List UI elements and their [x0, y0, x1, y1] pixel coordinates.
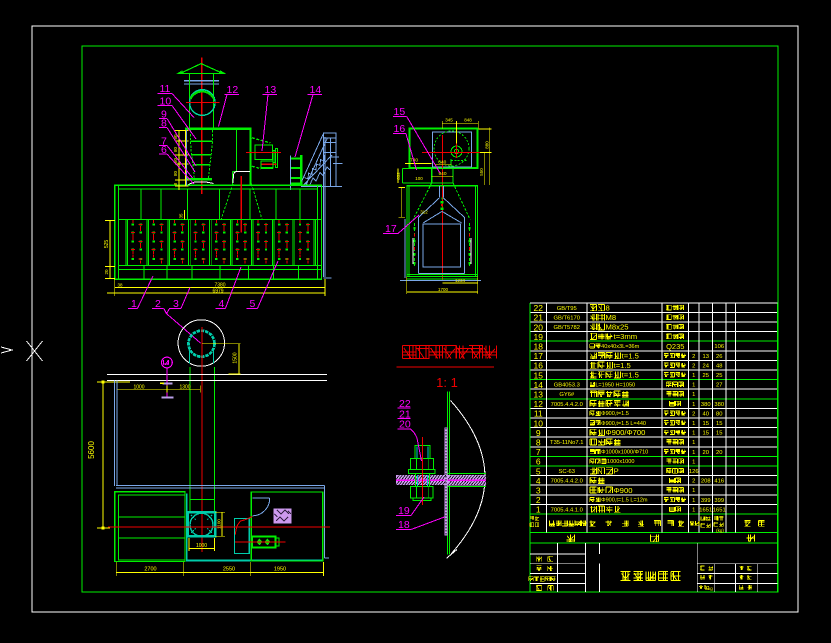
svg-text:Φ900,t=1.5: Φ900,t=1.5 — [601, 411, 629, 417]
svg-text:1: 1 — [692, 459, 695, 465]
svg-text:2: 2 — [692, 354, 695, 360]
svg-text:1: 1 — [692, 431, 695, 437]
svg-text:15: 15 — [703, 421, 709, 427]
svg-text:2: 2 — [692, 479, 695, 485]
svg-text:kg: kg — [708, 586, 713, 591]
svg-text:27: 27 — [716, 383, 722, 389]
svg-text:Φ900,t=1.5 L=440: Φ900,t=1.5 L=440 — [601, 421, 646, 427]
svg-text:7380: 7380 — [214, 282, 225, 288]
svg-text:1: 1: 1: 1 — [436, 375, 458, 390]
svg-text:25: 25 — [703, 373, 709, 379]
svg-text:1: 1 — [536, 505, 541, 515]
svg-text:6979: 6979 — [212, 288, 223, 294]
svg-text:1: 1 — [692, 392, 695, 398]
svg-text:380: 380 — [701, 402, 711, 408]
svg-text:GB/T95: GB/T95 — [557, 306, 577, 312]
svg-text:8: 8 — [606, 303, 610, 312]
svg-text:Φ900: Φ900 — [614, 486, 633, 495]
svg-text:8: 8 — [536, 438, 541, 448]
svg-text:1300: 1300 — [179, 384, 190, 390]
svg-text:22: 22 — [534, 303, 544, 313]
svg-text:1651: 1651 — [699, 507, 712, 513]
svg-text:416: 416 — [714, 479, 724, 485]
svg-text:1: 1 — [692, 373, 695, 379]
svg-text:17: 17 — [534, 351, 544, 361]
svg-text:380: 380 — [714, 402, 724, 408]
svg-text:14: 14 — [534, 380, 544, 390]
svg-text:13: 13 — [703, 354, 709, 360]
svg-text:GB4053.3: GB4053.3 — [554, 383, 580, 389]
svg-text:345: 345 — [445, 118, 453, 123]
svg-text:208: 208 — [701, 479, 711, 485]
svg-text:525: 525 — [104, 240, 110, 249]
svg-text:25: 25 — [716, 373, 722, 379]
svg-text:Φ1000x1000/Φ710: Φ1000x1000/Φ710 — [601, 450, 648, 456]
svg-text:P: P — [614, 467, 619, 476]
svg-text:12: 12 — [534, 399, 544, 409]
svg-text:106: 106 — [714, 344, 724, 350]
svg-text:5600: 5600 — [87, 441, 96, 459]
svg-text:9: 9 — [536, 428, 541, 438]
svg-text:L=1950 H=1050: L=1950 H=1050 — [595, 382, 635, 388]
svg-text:2: 2 — [692, 363, 695, 369]
svg-text:13: 13 — [534, 390, 544, 400]
svg-text:312: 312 — [420, 210, 428, 215]
svg-text:3: 3 — [536, 486, 541, 496]
svg-text:48: 48 — [716, 363, 722, 369]
svg-text:2550: 2550 — [223, 567, 235, 573]
svg-text:T35-11No7.1: T35-11No7.1 — [550, 440, 583, 446]
svg-text:7: 7 — [536, 447, 541, 457]
svg-text:1000: 1000 — [133, 384, 144, 390]
svg-text:7005.4.4.2.0: 7005.4.4.2.0 — [551, 479, 583, 485]
svg-text:Φ900/Φ700: Φ900/Φ700 — [606, 428, 646, 437]
svg-text:M8x25: M8x25 — [606, 323, 629, 332]
svg-text:2700: 2700 — [144, 567, 156, 573]
svg-text:21: 21 — [534, 313, 544, 323]
svg-text:80: 80 — [716, 411, 722, 417]
svg-text:26: 26 — [716, 354, 722, 360]
svg-text:t=1.5: t=1.5 — [622, 371, 639, 380]
svg-text:19: 19 — [534, 332, 544, 342]
svg-text:1000x1000: 1000x1000 — [607, 459, 634, 465]
svg-text:10: 10 — [534, 418, 544, 428]
svg-text:5: 5 — [536, 466, 541, 476]
svg-text:126: 126 — [689, 469, 699, 475]
svg-text:80: 80 — [173, 147, 178, 153]
svg-text:1234: 1234 — [455, 278, 466, 283]
svg-text:1: 1 — [692, 402, 695, 408]
svg-text:1100: 1100 — [217, 519, 222, 529]
svg-text:1: 1 — [692, 440, 695, 446]
svg-text:80: 80 — [173, 171, 178, 177]
svg-text:35: 35 — [179, 213, 184, 219]
svg-text:632: 632 — [396, 172, 401, 180]
svg-text:1651: 1651 — [713, 507, 726, 513]
svg-text:848: 848 — [464, 118, 472, 123]
svg-text:100: 100 — [415, 176, 423, 181]
svg-text:4: 4 — [536, 476, 541, 486]
svg-text:1: 1 — [692, 507, 695, 513]
svg-text:11: 11 — [534, 409, 543, 419]
svg-text:20: 20 — [716, 450, 722, 456]
svg-text:15: 15 — [703, 431, 709, 437]
svg-text:18: 18 — [534, 342, 544, 352]
svg-text:399: 399 — [714, 498, 724, 504]
svg-text:Q235: Q235 — [666, 342, 684, 351]
svg-text:38: 38 — [117, 283, 123, 288]
svg-text:15: 15 — [716, 421, 722, 427]
svg-text:M8: M8 — [606, 313, 617, 322]
svg-text:t=1.5: t=1.5 — [614, 361, 631, 370]
svg-text:16: 16 — [534, 361, 544, 371]
svg-text:880: 880 — [484, 141, 489, 149]
svg-text:GY6#: GY6# — [559, 392, 575, 398]
svg-text:1700: 1700 — [438, 287, 449, 292]
svg-text:GB/T6170: GB/T6170 — [554, 315, 580, 321]
svg-text:1000: 1000 — [196, 543, 207, 549]
svg-text:SC-63: SC-63 — [559, 469, 575, 475]
svg-text:1: 1 — [692, 421, 695, 427]
svg-text:GB/T5782: GB/T5782 — [554, 325, 580, 331]
svg-text:1950: 1950 — [274, 567, 286, 573]
svg-text:40: 40 — [703, 411, 709, 417]
svg-text:40x40x3L=36m: 40x40x3L=36m — [601, 344, 639, 350]
svg-text:6: 6 — [536, 457, 541, 467]
svg-text:Φ900,t=1.5 L=12m: Φ900,t=1.5 L=12m — [601, 498, 648, 504]
svg-text:20: 20 — [534, 322, 544, 332]
svg-text:20: 20 — [703, 450, 709, 456]
svg-text:7005.4.4.1.0: 7005.4.4.1.0 — [551, 507, 583, 513]
svg-text:15: 15 — [534, 370, 544, 380]
svg-text:1: 1 — [692, 450, 695, 456]
svg-text:(kg): (kg) — [716, 528, 724, 533]
svg-text:24: 24 — [703, 363, 710, 369]
svg-text:20: 20 — [104, 269, 109, 275]
svg-text:t=1.5: t=1.5 — [622, 351, 639, 360]
svg-text:15: 15 — [716, 431, 722, 437]
svg-text:550: 550 — [479, 168, 484, 176]
svg-text:2: 2 — [536, 495, 541, 505]
svg-text:1: 1 — [692, 383, 695, 389]
svg-text:399: 399 — [701, 498, 711, 504]
svg-text:t=3mm: t=3mm — [614, 332, 638, 341]
svg-text:2: 2 — [692, 411, 695, 417]
svg-text:1: 1 — [692, 488, 695, 494]
svg-text:1500: 1500 — [232, 352, 238, 363]
svg-text:1: 1 — [692, 498, 695, 504]
svg-text:7005.4.4.2.0: 7005.4.4.2.0 — [551, 402, 583, 408]
